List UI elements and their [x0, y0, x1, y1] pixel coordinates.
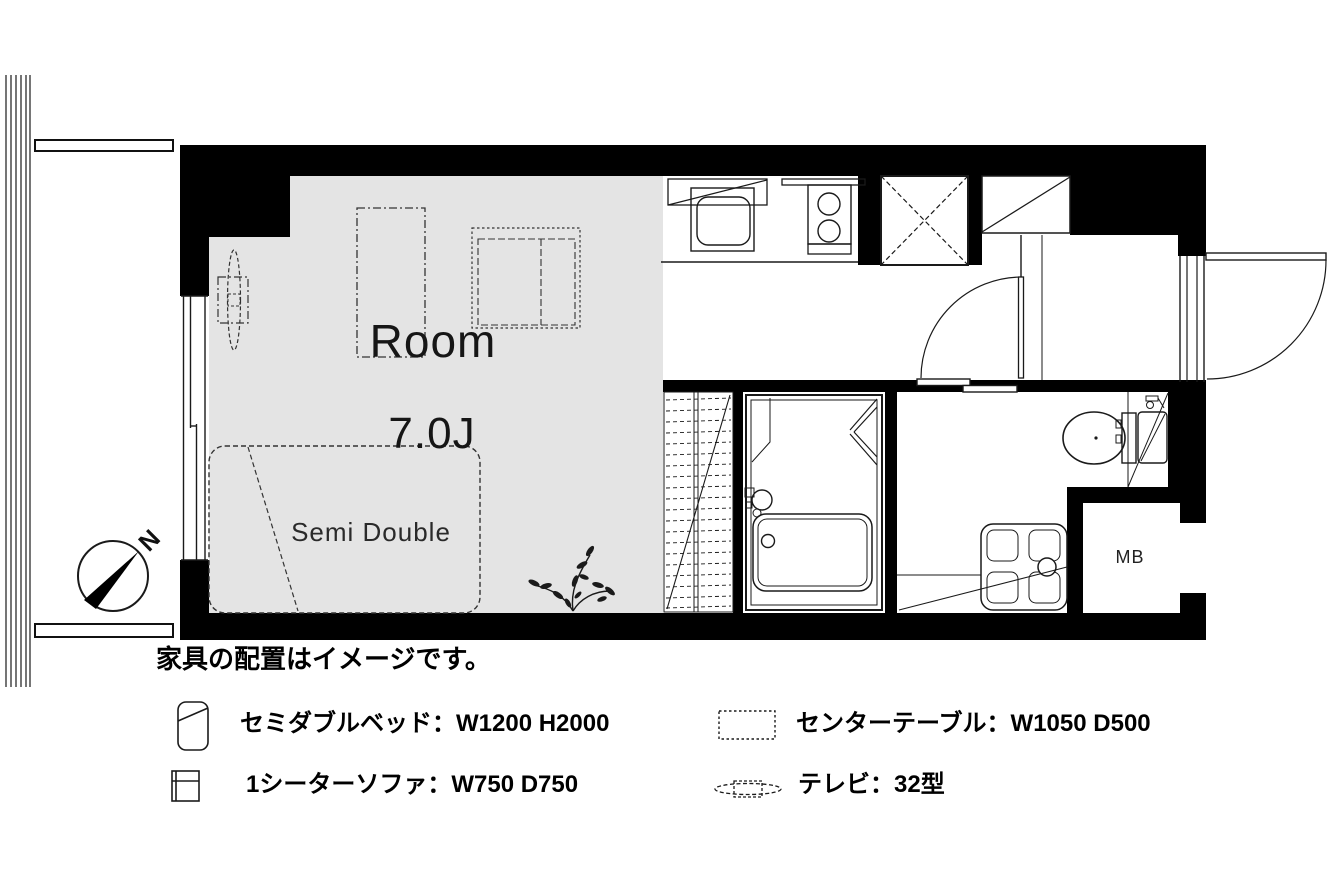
legend-tv-icon [715, 781, 781, 797]
legend-sofa-icon [172, 771, 199, 801]
legend-item-tv: テレビ：32型 [798, 773, 945, 797]
furniture-disclaimer: 家具の配置はイメージです。 [156, 646, 491, 672]
building-edge-lines [6, 75, 30, 687]
bed-label: Semi Double [291, 519, 451, 545]
meter-box-opening [1180, 523, 1206, 593]
meter-box-label: MB [1116, 548, 1145, 566]
compass [78, 541, 148, 611]
window-sliding-door [181, 296, 208, 560]
closet-hatch [664, 392, 733, 612]
room-floor [209, 176, 663, 613]
legend-table-icon [719, 711, 775, 739]
refrigerator-space [881, 176, 968, 265]
room-label: Room [370, 318, 497, 364]
legend-item-center-table: センターテーブル：W1050 D500 [796, 712, 1151, 736]
floor-plan-page: Room 7.0J Semi Double MB N 家具の配置はイメージです。… [0, 0, 1330, 887]
shoe-cabinet [982, 176, 1070, 233]
room-size-label: 7.0J [388, 412, 475, 456]
floor-plan-drawing [0, 0, 1330, 887]
legend-item-one-seater-sofa: 1シーターソファ：W750 D750 [246, 773, 578, 797]
legend-bed-icon [178, 702, 208, 750]
legend-item-semi-double-bed: セミダブルベッド：W1200 H2000 [240, 712, 609, 736]
